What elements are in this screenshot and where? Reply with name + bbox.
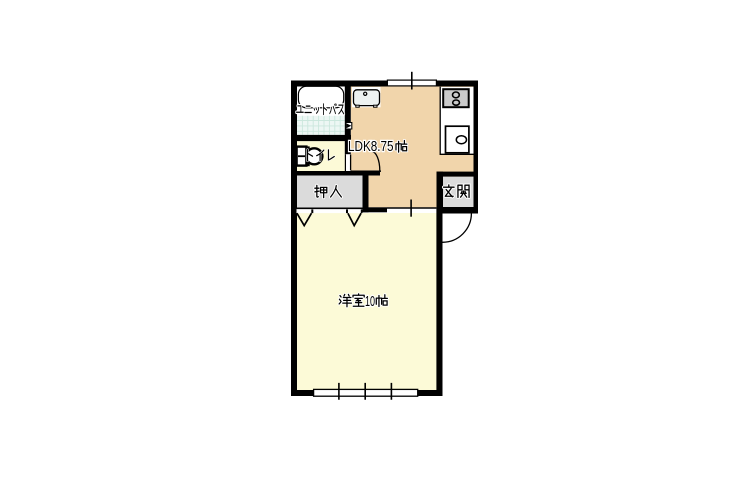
svg-text:10: 10 [365, 293, 375, 310]
svg-text:LDK8.75: LDK8.75 [348, 139, 394, 155]
